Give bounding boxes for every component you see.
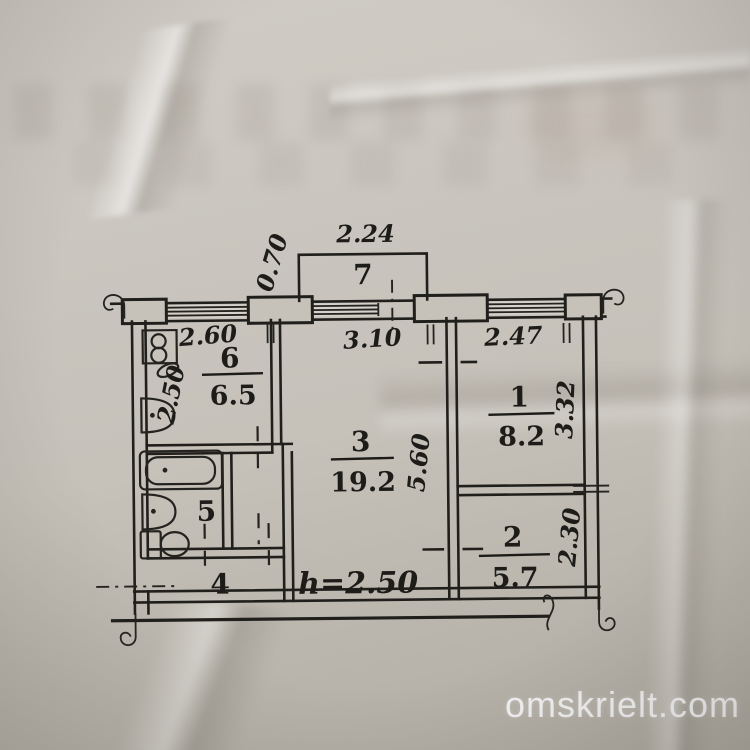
room-area: 5.7 xyxy=(491,562,538,593)
room-2-label: 2 5.7 xyxy=(479,520,551,594)
room1-room2-partition xyxy=(458,485,585,495)
wall-pier xyxy=(414,295,487,322)
dim-kitchen-width: 2.60 xyxy=(177,318,239,352)
room-area: 6.5 xyxy=(210,380,257,411)
right-exterior-wall xyxy=(571,317,614,631)
room-number: 5 xyxy=(197,495,217,528)
door-opening-mark xyxy=(424,549,482,550)
axis-line xyxy=(96,586,174,587)
room-number: 1 xyxy=(509,380,529,413)
room-number: 4 xyxy=(210,568,230,601)
room-number: 7 xyxy=(353,258,373,291)
dim-living-width: 3.10 xyxy=(342,322,402,355)
dimension-tick xyxy=(573,486,609,492)
room-5-label: 5 xyxy=(197,495,217,528)
ceiling-height-label: h=2.50 xyxy=(298,566,419,602)
dim-balcony-depth: 0.70 xyxy=(250,230,294,295)
dim-living-depth: 5.60 xyxy=(401,432,435,493)
floor-plan-photo: 7 6 6.5 5 4 3 19.2 1 8.2 2 5.7 2.24 xyxy=(0,0,750,750)
wall-cut-mark xyxy=(544,595,554,630)
room-number: 3 xyxy=(351,425,371,458)
room-7-label: 7 xyxy=(353,258,373,291)
room-6-label: 6 6.5 xyxy=(202,341,264,412)
room-3-label: 3 19.2 xyxy=(330,425,397,499)
wall-pier xyxy=(122,299,166,323)
wall-cut-mark xyxy=(120,614,135,646)
floor-plan-drawing: 7 6 6.5 5 4 3 19.2 1 8.2 2 5.7 2.24 xyxy=(0,0,750,750)
bathtub-icon xyxy=(140,451,222,490)
watermark: omskrielt.com xyxy=(505,684,740,726)
dim-room1-depth: 3.32 xyxy=(549,380,580,440)
room-1-label: 1 8.2 xyxy=(488,380,555,453)
dim-room1-width: 2.47 xyxy=(482,320,543,352)
apartment-floor-plan: 7 6 6.5 5 4 3 19.2 1 8.2 2 5.7 2.24 xyxy=(0,0,750,750)
wall-cut-mark xyxy=(599,609,615,631)
window-icon xyxy=(487,301,565,315)
room-area: 8.2 xyxy=(498,421,545,452)
dim-room2-depth: 2.30 xyxy=(552,506,586,568)
window-icon xyxy=(312,303,378,317)
wall-pier xyxy=(565,295,601,319)
room-number: 2 xyxy=(503,520,523,553)
dim-balcony-width: 2.24 xyxy=(335,219,395,249)
room-area: 19.2 xyxy=(330,467,396,499)
ground-line xyxy=(113,616,549,621)
room-4-label: 4 xyxy=(210,568,230,601)
wall-cut-mark xyxy=(603,290,624,314)
window-icon xyxy=(166,304,248,318)
